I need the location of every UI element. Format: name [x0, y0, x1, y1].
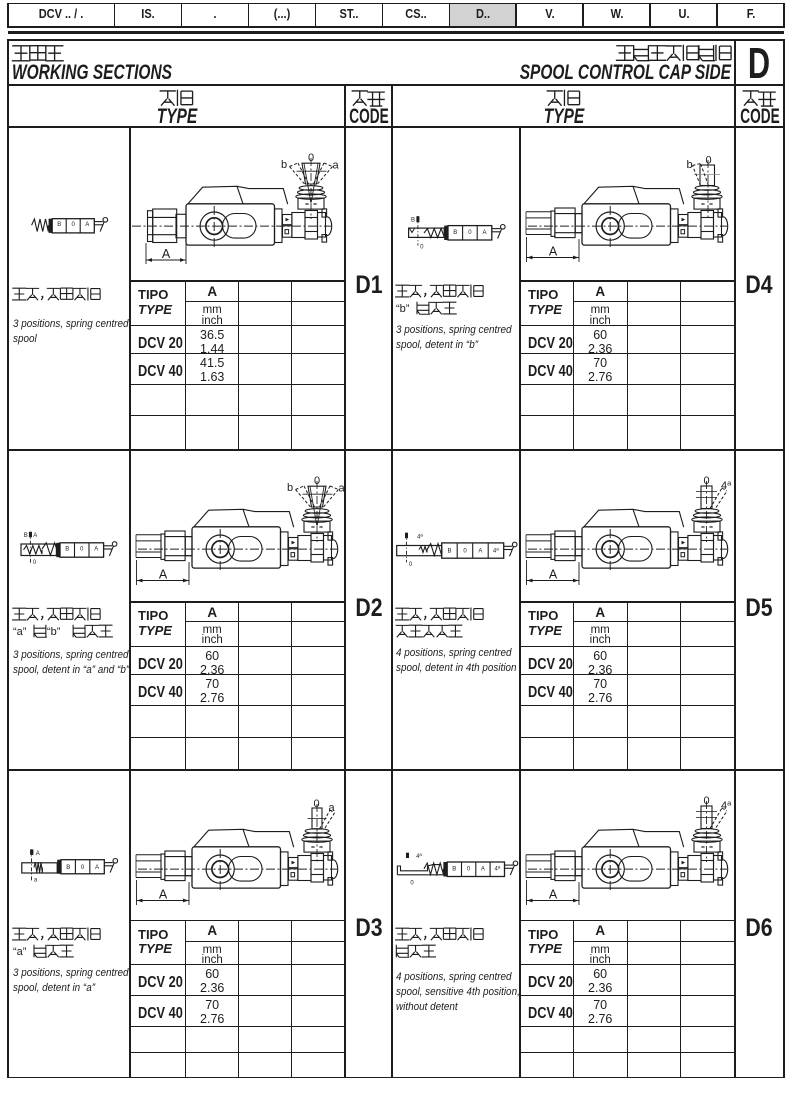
svg-text:A: A: [482, 230, 486, 236]
svg-text:B: B: [24, 533, 28, 539]
svg-text:A: A: [33, 533, 37, 539]
svg-text:A: A: [481, 867, 485, 873]
svg-text:B: B: [65, 546, 69, 552]
svg-text:b: b: [287, 482, 293, 494]
svg-text:0: 0: [705, 155, 711, 167]
svg-text:0: 0: [308, 152, 314, 164]
svg-text:A: A: [159, 568, 168, 582]
svg-text:“b”: “b”: [396, 303, 410, 315]
svg-text:4a: 4a: [416, 852, 422, 860]
svg-text:A: A: [549, 888, 558, 902]
svg-text:0: 0: [703, 795, 709, 807]
svg-text:0: 0: [468, 230, 472, 236]
svg-text:B: B: [57, 222, 61, 228]
svg-text:0: 0: [703, 475, 709, 487]
svg-text:4a: 4a: [721, 799, 732, 813]
svg-text:4a: 4a: [417, 533, 423, 541]
svg-text:A: A: [159, 888, 168, 902]
svg-text:“a”: “a”: [13, 946, 27, 958]
svg-text:b: b: [281, 159, 287, 171]
svg-text:0: 0: [314, 475, 320, 487]
svg-text:A: A: [478, 549, 482, 555]
svg-text:A: A: [162, 247, 171, 261]
svg-text:0: 0: [80, 546, 84, 552]
svg-text:“b”: “b”: [47, 626, 61, 638]
svg-text:a: a: [338, 483, 345, 495]
svg-text:4a: 4a: [494, 865, 500, 873]
svg-text:B: B: [447, 549, 451, 555]
svg-text:0: 0: [409, 562, 413, 568]
svg-text:B: B: [452, 867, 456, 873]
svg-text:0: 0: [81, 865, 85, 871]
svg-text:0: 0: [33, 560, 37, 566]
svg-text:0: 0: [313, 798, 319, 810]
svg-text:0: 0: [463, 549, 467, 555]
svg-text:0: 0: [72, 222, 76, 228]
svg-text:a: a: [332, 160, 339, 172]
svg-text:0: 0: [410, 881, 414, 887]
svg-text:A: A: [94, 546, 98, 552]
svg-text:0: 0: [420, 244, 424, 250]
svg-text:B: B: [453, 230, 457, 236]
svg-text:A: A: [85, 222, 89, 228]
svg-text:B: B: [66, 865, 70, 871]
svg-text:a: a: [34, 878, 38, 884]
svg-text:“a”: “a”: [13, 626, 27, 638]
svg-text:B: B: [411, 218, 415, 224]
svg-text:A: A: [549, 245, 558, 259]
svg-text:a: a: [328, 802, 335, 814]
svg-text:A: A: [95, 865, 99, 871]
svg-text:A: A: [36, 851, 40, 857]
svg-text:b: b: [686, 159, 692, 171]
svg-text:4a: 4a: [721, 479, 732, 493]
svg-text:0: 0: [467, 867, 471, 873]
svg-text:4a: 4a: [493, 547, 499, 555]
svg-text:A: A: [549, 568, 558, 582]
